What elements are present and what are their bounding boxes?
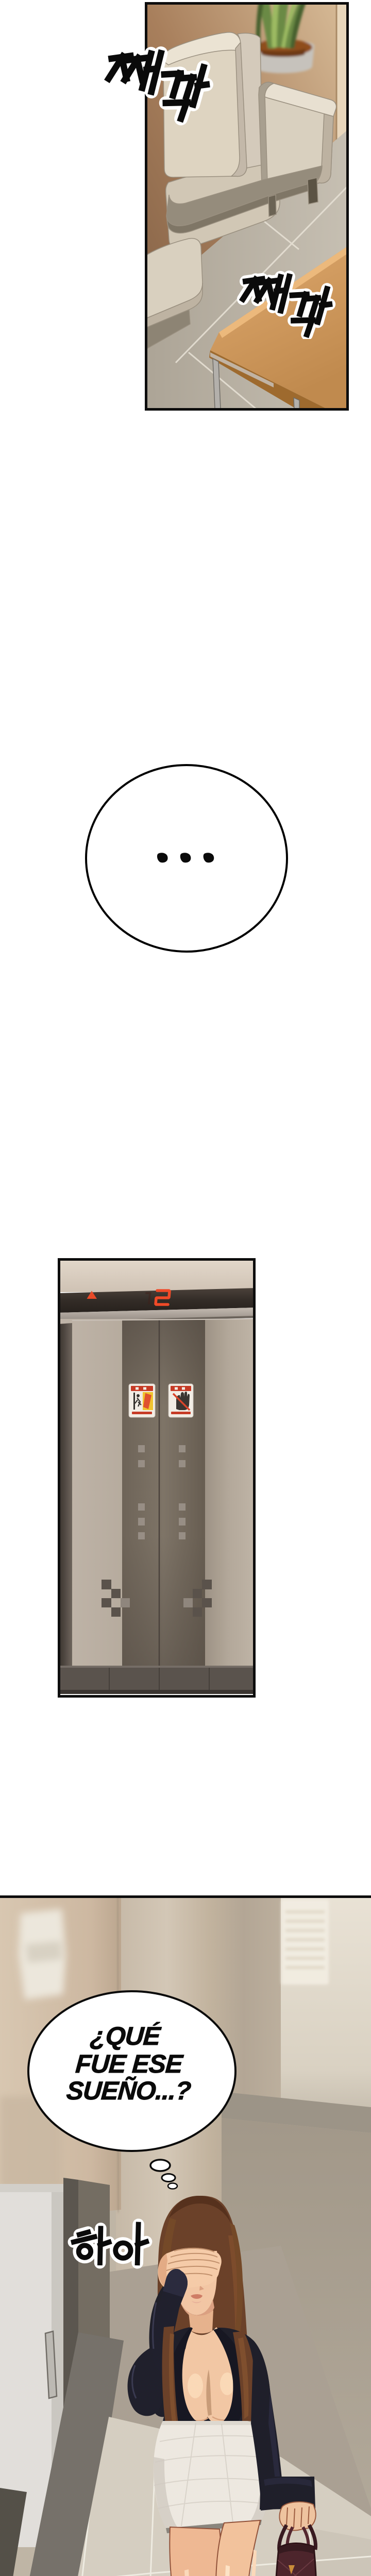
svg-text:FUE ESE: FUE ESE <box>75 2049 184 2078</box>
svg-text:¿QUÉ: ¿QUÉ <box>90 2022 162 2050</box>
svg-text:SUEÑO...?: SUEÑO...? <box>65 2076 192 2105</box>
